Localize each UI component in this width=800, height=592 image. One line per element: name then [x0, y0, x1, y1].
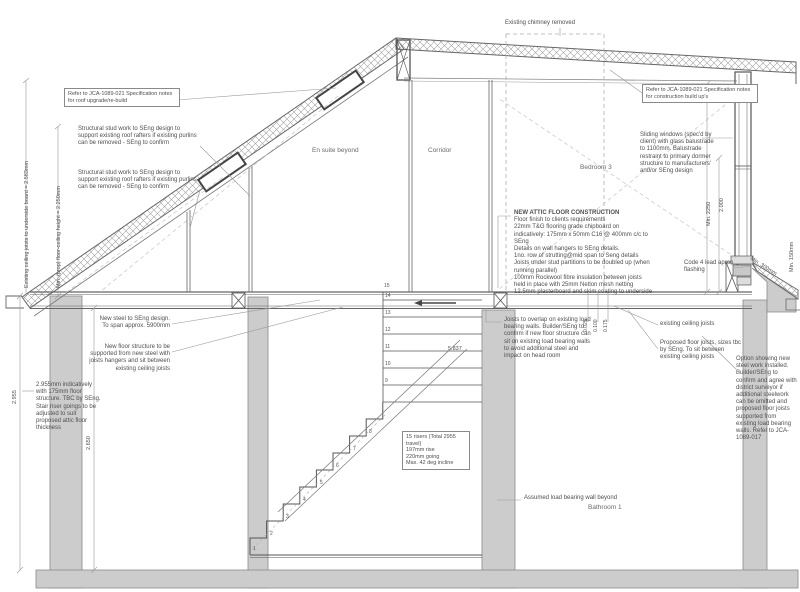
note-existing-joists: existing ceiling joists [660, 321, 740, 328]
staircase [250, 292, 482, 558]
room-label-ensuite: En suite beyond [312, 147, 359, 154]
note-left-wall: 2.955mm indicatively with 175mm floor st… [36, 382, 102, 432]
stair-spec-line: 15 risers (Total 2955 travel) [406, 434, 466, 447]
stair-number: 7 [353, 446, 356, 452]
stair-number: 2 [270, 531, 273, 537]
note-attic-construction: NEW ATTIC FLOOR CONSTRUCTION Floor finis… [514, 210, 664, 296]
note-stair-spec: 15 risers (Total 2955 travel) 197mm rise… [402, 431, 470, 470]
stud-partitions [187, 80, 492, 292]
stair-number: 11 [385, 344, 390, 350]
attic-line: 100mm Rockwool fibre insulation between … [514, 275, 664, 282]
dim-existing-ceiling-height: Existing ceiling joists to underside boa… [24, 161, 31, 288]
attic-line: Joists under stud partitions to be doubl… [514, 260, 664, 274]
note-stud-work-1: Structural stud work to SEng design to s… [78, 126, 200, 148]
dim-min-2250: Min. 2250 [706, 202, 713, 226]
stair-number: 6 [336, 463, 339, 469]
stair-number: 3 [286, 514, 289, 520]
attic-line: held in place with 25mm Netlon mesh nett… [514, 282, 664, 289]
stair-number: 13 [385, 310, 391, 316]
note-proposed-joists: Proposed floor joists, sizes tbc by SEng… [660, 340, 742, 362]
note-new-floor-structure: New floor structure to be supported from… [80, 344, 170, 373]
dim-5837: 5.837 [448, 346, 462, 353]
stair-number: 12 [385, 327, 391, 333]
attic-line: 12.5mm plasterboard and skim coating to … [514, 289, 664, 296]
stair-spec-line: Max. 42 deg incline [406, 460, 466, 467]
room-label-bedroom3: Bedroom 3 [580, 164, 612, 171]
attic-line: indicatively: 175mm x 50mm C16 @ 400mm c… [514, 232, 664, 246]
dim-min-floor-ceiling: Min. (prop) floor-ceiling height = 2.250… [56, 186, 63, 288]
note-ref-roof-spec: Refer to JCA-1089-021 Specification note… [64, 88, 180, 107]
note-stud-work-2: Structural stud work to SEng design to s… [78, 170, 200, 192]
stair-spec-line: 197mm rise [406, 447, 466, 454]
attic-construction-title: NEW ATTIC FLOOR CONSTRUCTION [514, 210, 664, 217]
note-option-steel: Option showing new steel work installed.… [736, 356, 798, 442]
note-chimney-removed: Existing chimney removed [505, 20, 625, 27]
stair-number: 15 [384, 283, 390, 289]
dim-0175: 0.175 [603, 319, 609, 332]
dim-2650: 2.650 [86, 436, 93, 450]
note-lead-flashing: Code 4 lead apron flashing [684, 260, 736, 274]
attic-line: 1no. row of strutting@mid span to Seng d… [514, 253, 664, 260]
attic-line: Details on wall hangers to SEng details. [514, 246, 664, 253]
stair-number: 5 [320, 480, 323, 486]
dim-2955: 2.955 [12, 390, 19, 404]
section-drawing-canvas: Refer to JCA-1089-021 Specification note… [0, 0, 800, 592]
note-ref-construction: Refer to JCA-1089-021 Specification note… [642, 84, 758, 103]
room-label-corridor: Corridor [428, 147, 451, 154]
right-roof [396, 38, 796, 84]
stair-number: 8 [369, 429, 372, 435]
dim-2000: 2.000 [719, 198, 726, 212]
stair-number: 9 [385, 378, 388, 384]
note-sliding-windows: Sliding windows (spec'd by client) with … [640, 132, 716, 175]
room-label-bathroom1: Bathroom 1 [588, 504, 622, 511]
dim-0100: 0.100 [593, 319, 599, 332]
note-assumed-wall: Assumed load bearing wall beyond [524, 495, 684, 502]
note-new-steel: New steel to SEng design. To span approx… [98, 316, 170, 330]
attic-line: 22mm T&G flooring grade chipboard on [514, 224, 664, 231]
stair-number: 1 [253, 546, 256, 552]
stair-spec-line: 220mm going [406, 454, 466, 461]
attic-line: Floor finish to clients requirements [514, 217, 664, 224]
dim-min-150: Min. 150mm [789, 242, 796, 272]
stair-number: 14 [385, 293, 391, 299]
stair-number: 4 [303, 497, 306, 503]
dim-0025: 0.025 [583, 319, 589, 332]
stair-number: 10 [385, 361, 391, 367]
